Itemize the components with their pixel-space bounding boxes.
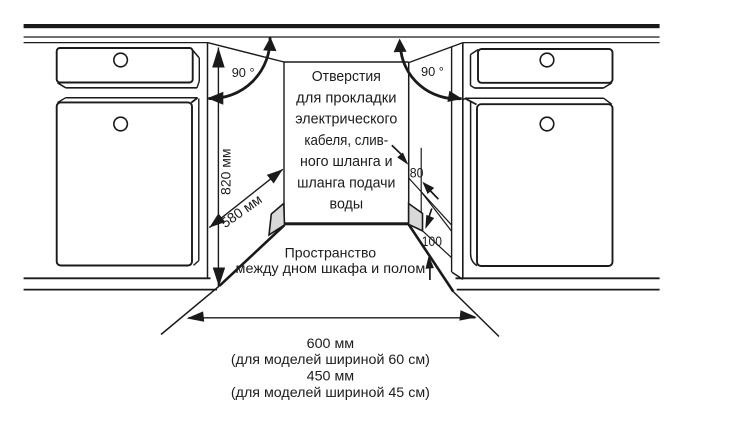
svg-text:шланга подачи: шланга подачи bbox=[297, 175, 395, 191]
svg-text:90 °: 90 ° bbox=[421, 64, 444, 79]
svg-text:ного шланга и: ного шланга и bbox=[300, 154, 393, 170]
svg-text:кабеля, слив-: кабеля, слив- bbox=[304, 133, 388, 149]
svg-text:электрического: электрического bbox=[295, 112, 397, 128]
svg-text:между дном шкафа и полом: между дном шкафа и полом bbox=[236, 260, 426, 276]
svg-text:воды: воды bbox=[330, 197, 364, 213]
svg-text:Отверстия: Отверстия bbox=[312, 69, 381, 85]
svg-text:Пространство: Пространство bbox=[285, 244, 377, 260]
svg-text:100: 100 bbox=[422, 234, 442, 249]
svg-text:(для моделей шириной 45 см): (для моделей шириной 45 см) bbox=[231, 384, 430, 400]
svg-text:820 мм: 820 мм bbox=[218, 148, 234, 195]
svg-text:(для моделей шириной 60 см): (для моделей шириной 60 см) bbox=[231, 351, 430, 367]
svg-text:600 мм: 600 мм bbox=[307, 335, 355, 351]
svg-text:для прокладки: для прокладки bbox=[296, 90, 396, 106]
svg-text:80: 80 bbox=[410, 165, 424, 180]
svg-text:90 °: 90 ° bbox=[232, 65, 255, 80]
svg-text:450 мм: 450 мм bbox=[307, 368, 355, 384]
